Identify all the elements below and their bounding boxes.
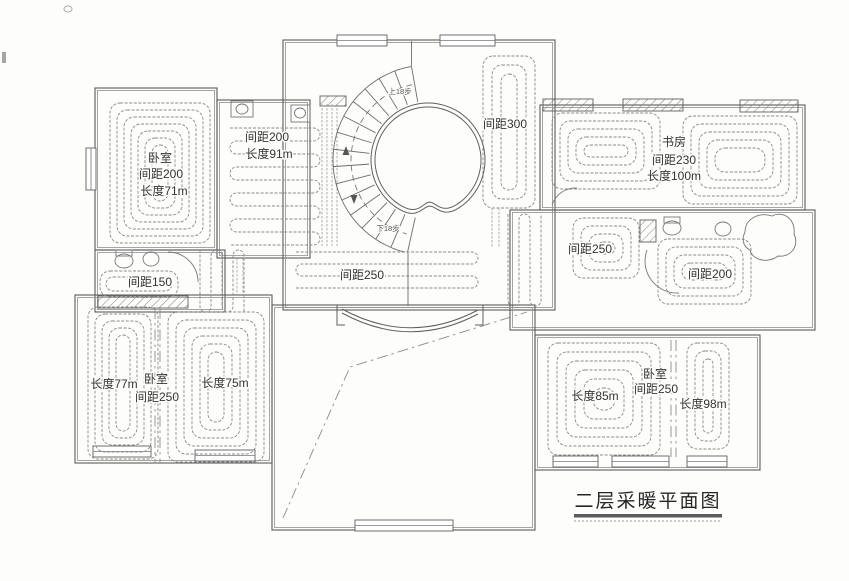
- stair-step: [407, 218, 415, 253]
- bedroom-nw-length: 长度71m: [140, 183, 187, 198]
- stair-step: [365, 89, 389, 116]
- bedroom-sw-length-left: 长度77m: [90, 376, 137, 391]
- bedroom-sw-length-right: 长度75m: [201, 375, 248, 390]
- stair-step: [344, 116, 376, 133]
- stair-arrow-down: [351, 195, 358, 204]
- hatched-wall: [740, 100, 798, 112]
- heating-serpentine: [296, 252, 478, 288]
- door-swing-arc: [552, 188, 577, 205]
- bedroom-sw-spacing: 间距250: [135, 390, 179, 404]
- bath-west-spacing: 间距150: [128, 275, 172, 289]
- hatched-wall: [543, 99, 593, 111]
- closet-east-spacing: 间距250: [568, 242, 612, 256]
- heating-coil-loop: [584, 145, 628, 157]
- closet-fixture: [231, 101, 253, 117]
- plan-title: 二层采暖平面图: [574, 490, 721, 512]
- balcony-curve-inner: [342, 313, 478, 332]
- bedroom-se-length-right: 长度98m: [679, 396, 726, 411]
- heating-coil-loop: [483, 56, 535, 208]
- bedroom-sw-name: 卧室: [144, 371, 168, 386]
- wall-outline: [510, 210, 815, 330]
- hatched-wall: [623, 99, 683, 111]
- stair-void-edge-inner: [375, 107, 481, 210]
- bathtub: [743, 214, 796, 260]
- wall-outline: [272, 305, 535, 530]
- hall-south-spacing: 间距250: [340, 268, 384, 282]
- wall-outline: [217, 100, 310, 258]
- hatched-wall: [320, 96, 346, 106]
- wall-inner-line: [220, 103, 308, 256]
- hatched-wall: [98, 296, 188, 308]
- bedroom-se-spacing: 间距250: [634, 382, 678, 396]
- corridor-spacing: 间距200: [245, 130, 289, 144]
- wall-outline: [283, 40, 555, 310]
- hall-east-spacing: 间距300: [483, 117, 527, 131]
- bath-east-spacing: 间距200: [688, 267, 732, 281]
- bedroom-nw-name: 卧室: [148, 150, 172, 165]
- reference-dash-lines: [155, 308, 676, 518]
- study-name: 书房: [662, 134, 686, 149]
- hatched-wall: [640, 220, 656, 242]
- stair-up-label: 上18步: [388, 87, 412, 96]
- stair-void-edge-outer: [371, 103, 485, 213]
- wall-inner-line: [513, 213, 813, 328]
- bedroom-se-length-left: 长度85m: [571, 388, 618, 403]
- dash-dot-line: [283, 312, 527, 518]
- heating-plan-canvas: 卧室间距200长度71m间距200长度91m间距300书房间距230长度100m…: [0, 0, 849, 581]
- title-underline: [574, 514, 722, 518]
- study-length: 长度100m: [647, 168, 701, 183]
- heating-coil-loop: [707, 140, 773, 180]
- heating-coil-loop: [501, 74, 517, 190]
- stair-step: [342, 185, 375, 200]
- bedroom-nw-spacing: 间距200: [139, 167, 183, 181]
- heating-coil-loop: [695, 351, 721, 441]
- closet-fixture-detail: [295, 108, 306, 118]
- door-swing-arc: [168, 252, 198, 282]
- corridor-length: 长度91m: [245, 146, 292, 161]
- wall-inner-line: [275, 308, 533, 528]
- scan-mark: [64, 6, 72, 12]
- stair-step: [412, 66, 418, 101]
- heating-coil-loop: [715, 148, 765, 172]
- sink-basin: [143, 252, 159, 266]
- heating-coil-loop: [568, 129, 644, 173]
- scan-mark: [2, 52, 6, 63]
- floor-plan-drawing: 卧室间距200长度71m间距200长度91m间距300书房间距230长度100m…: [0, 0, 849, 581]
- sink-basin: [715, 222, 731, 236]
- bedroom-se-name: 卧室: [643, 366, 667, 381]
- scan-artifacts: [2, 6, 72, 63]
- heating-coil-loop: [576, 137, 636, 165]
- heating-coil-loop: [703, 359, 713, 433]
- balcony-curve-outer: [342, 309, 478, 328]
- balcony-step-left: [337, 305, 345, 325]
- heating-coil-loop: [492, 65, 526, 199]
- heating-coil-loop: [691, 124, 789, 196]
- heating-serpentine: [508, 214, 541, 306]
- stair-down-label: 下18步: [376, 224, 400, 233]
- heating-serpentine: [230, 128, 320, 245]
- heating-coil-loop: [683, 116, 797, 204]
- title-block: 二层采暖平面图: [574, 490, 722, 521]
- closet-fixture-detail: [236, 104, 248, 114]
- study-spacing: 间距230: [652, 153, 696, 167]
